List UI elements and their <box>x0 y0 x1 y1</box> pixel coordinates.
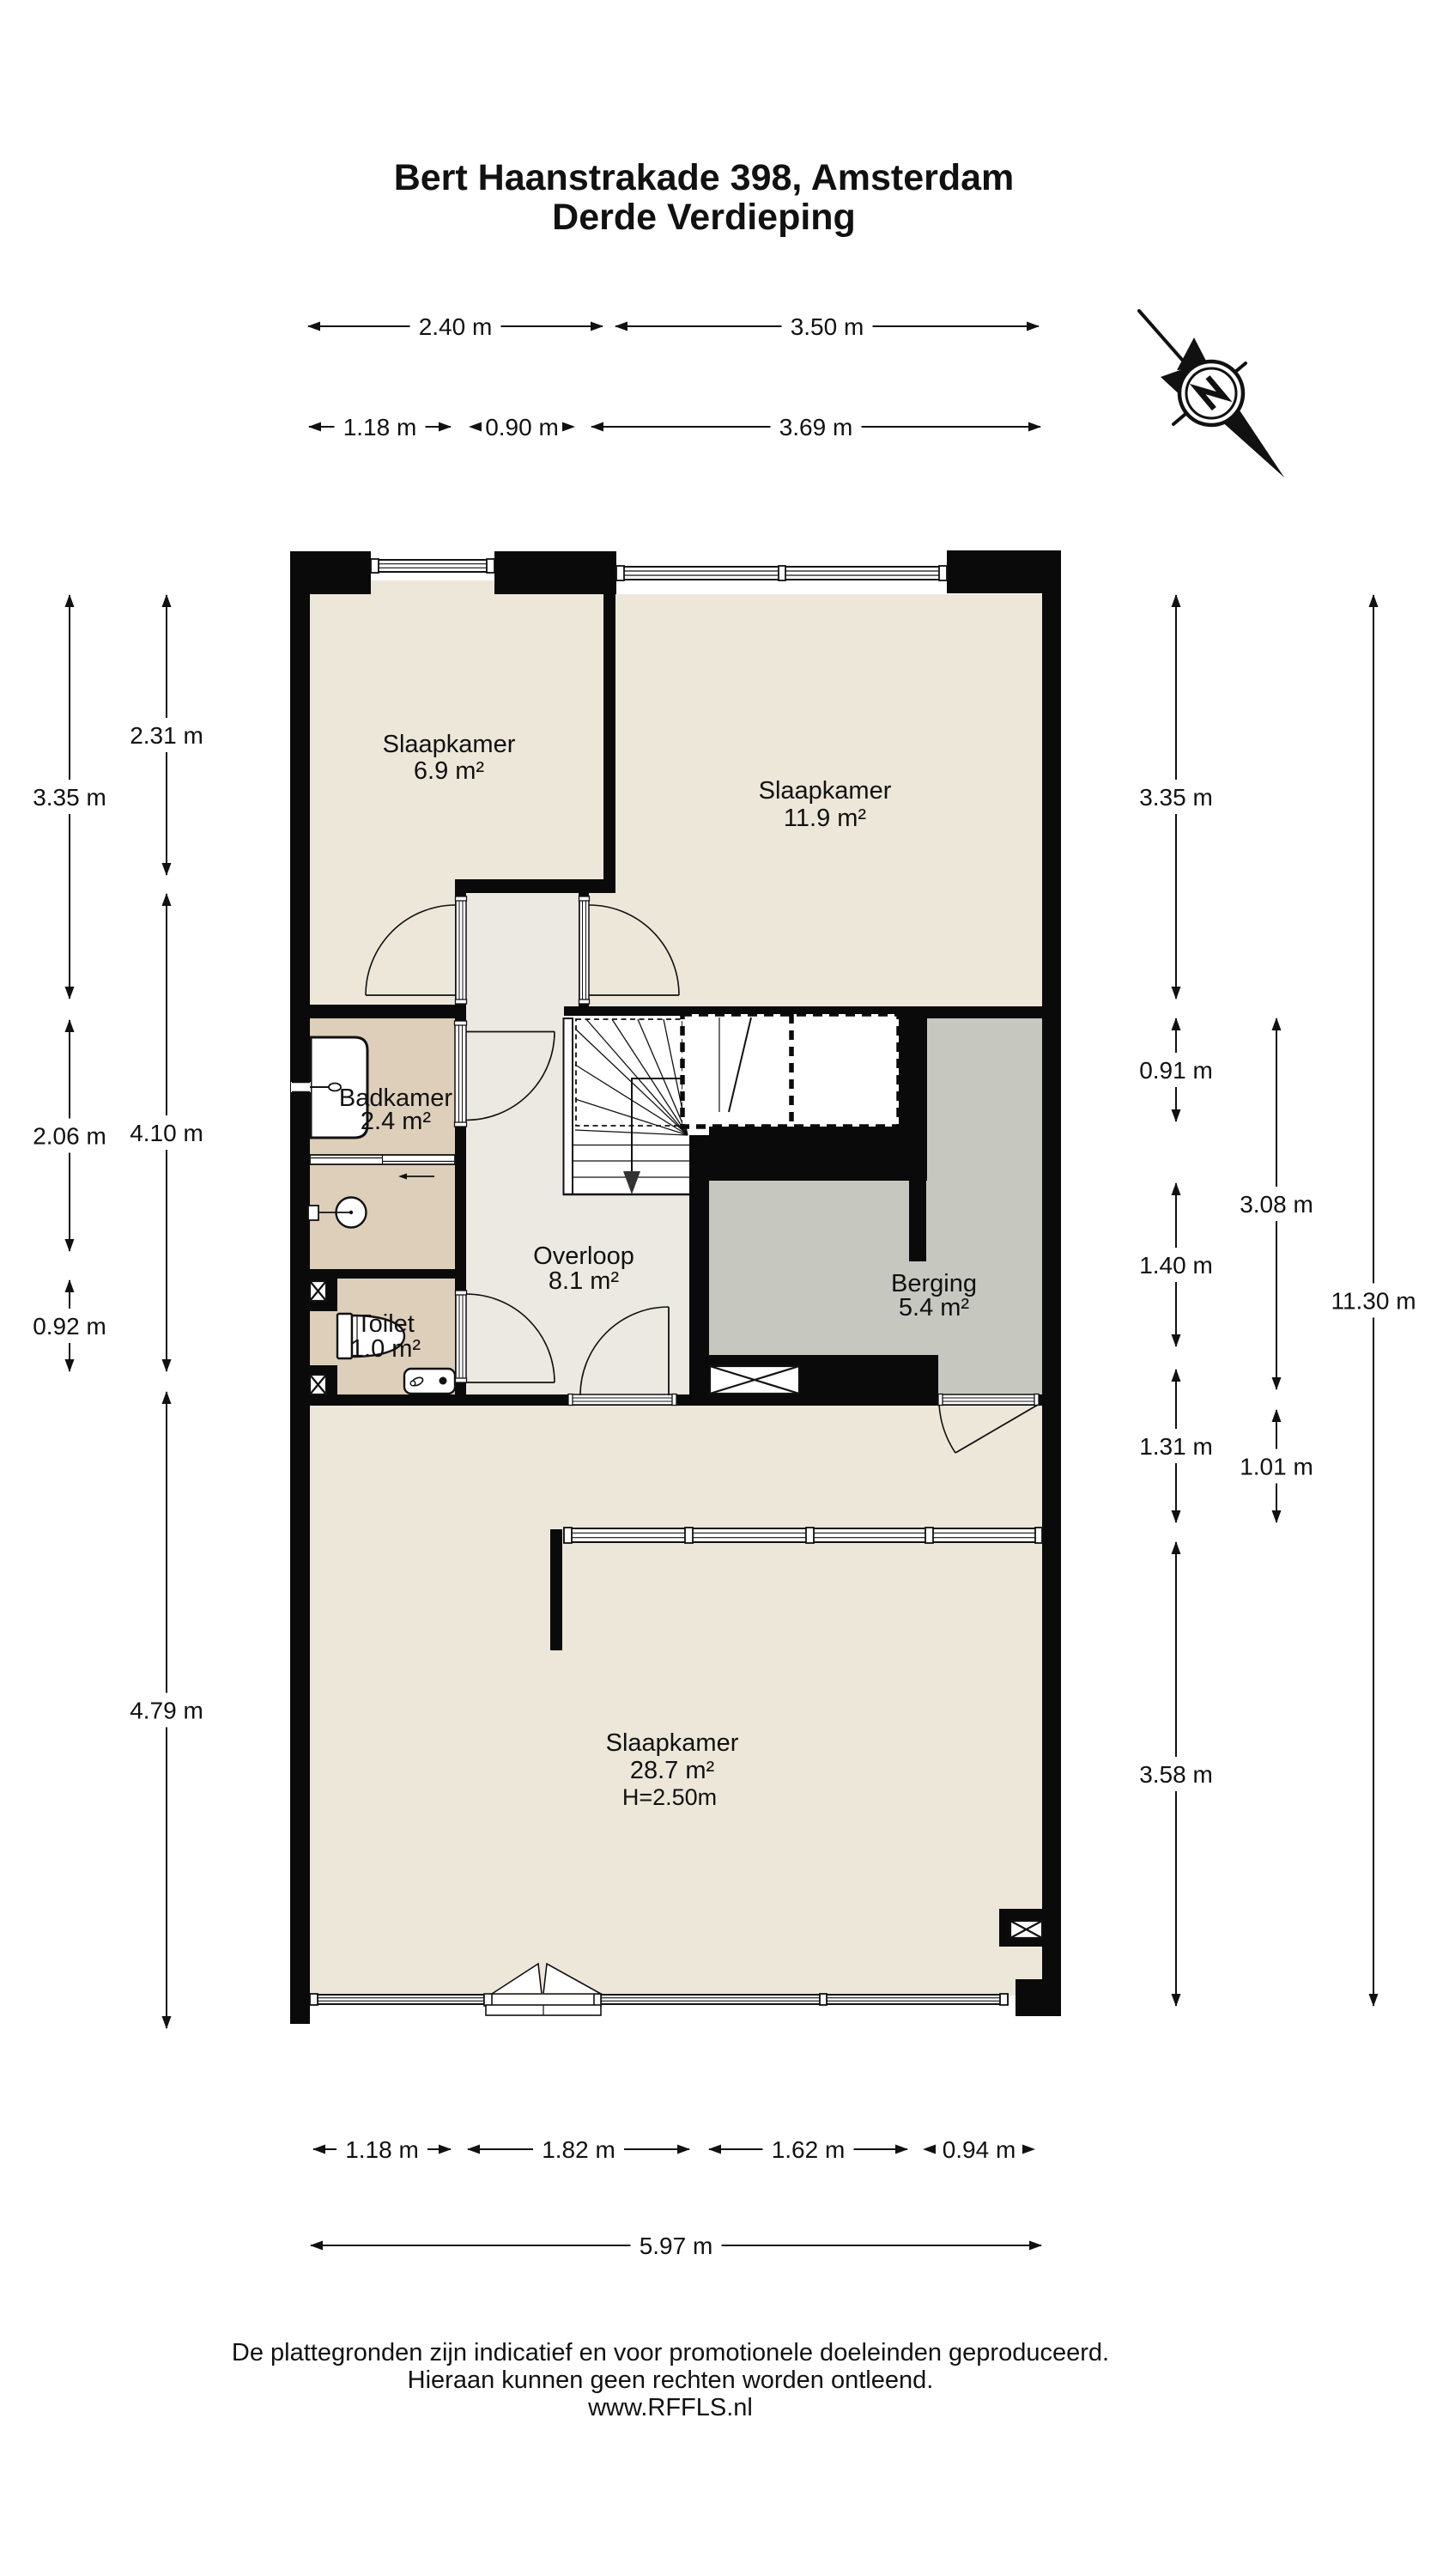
svg-text:Derde Verdieping: Derde Verdieping <box>552 197 856 238</box>
svg-text:4.10 m: 4.10 m <box>130 1120 203 1146</box>
svg-text:0.92 m: 0.92 m <box>33 1313 106 1340</box>
svg-text:6.9 m²: 6.9 m² <box>414 757 485 785</box>
svg-text:0.90 m: 0.90 m <box>485 414 559 440</box>
svg-text:Slaapkamer: Slaapkamer <box>383 731 516 758</box>
svg-text:0.94 m: 0.94 m <box>943 2136 1016 2163</box>
svg-text:11.30 m: 11.30 m <box>1331 1288 1416 1315</box>
svg-text:8.1 m²: 8.1 m² <box>549 1267 620 1295</box>
svg-text:3.08 m: 3.08 m <box>1240 1191 1313 1218</box>
svg-text:1.40 m: 1.40 m <box>1139 1252 1213 1279</box>
svg-text:0.91 m: 0.91 m <box>1139 1057 1213 1084</box>
svg-text:5.4 m²: 5.4 m² <box>899 1294 970 1321</box>
svg-text:3.58 m: 3.58 m <box>1139 1761 1213 1788</box>
svg-text:2.40 m: 2.40 m <box>419 313 493 340</box>
svg-text:3.35 m: 3.35 m <box>1139 784 1213 811</box>
svg-text:1.31 m: 1.31 m <box>1139 1433 1213 1460</box>
svg-text:3.69 m: 3.69 m <box>779 414 853 440</box>
svg-text:2.31 m: 2.31 m <box>130 722 203 749</box>
svg-text:Bert Haanstrakade 398, Amsterd: Bert Haanstrakade 398, Amsterdam <box>394 157 1015 198</box>
svg-text:1.18 m: 1.18 m <box>343 414 417 440</box>
svg-text:Hieraan kunnen geen rechten wo: Hieraan kunnen geen rechten worden ontle… <box>408 2366 934 2394</box>
svg-text:3.35 m: 3.35 m <box>33 784 106 811</box>
svg-text:1.0 m²: 1.0 m² <box>350 1335 421 1363</box>
svg-text:www.RFFLS.nl: www.RFFLS.nl <box>587 2394 753 2421</box>
svg-text:2.06 m: 2.06 m <box>33 1123 106 1150</box>
svg-text:1.18 m: 1.18 m <box>345 2136 419 2163</box>
svg-text:Overloop: Overloop <box>533 1242 634 1270</box>
svg-text:3.50 m: 3.50 m <box>791 313 864 340</box>
svg-text:28.7 m²: 28.7 m² <box>630 1757 715 1784</box>
svg-text:Slaapkamer: Slaapkamer <box>606 1729 739 1757</box>
svg-text:De plattegronden zijn indicati: De plattegronden zijn indicatief en voor… <box>232 2339 1109 2366</box>
svg-text:5.97 m: 5.97 m <box>640 2233 713 2259</box>
svg-text:H=2.50m: H=2.50m <box>622 1784 717 1810</box>
svg-text:Toilet: Toilet <box>356 1310 415 1338</box>
svg-text:1.82 m: 1.82 m <box>542 2136 615 2163</box>
svg-text:2.4 m²: 2.4 m² <box>361 1108 432 1135</box>
svg-text:11.9 m²: 11.9 m² <box>784 805 867 832</box>
svg-text:1.01 m: 1.01 m <box>1240 1454 1313 1480</box>
svg-text:1.62 m: 1.62 m <box>772 2136 846 2163</box>
svg-text:Slaapkamer: Slaapkamer <box>759 777 892 805</box>
svg-text:4.79 m: 4.79 m <box>130 1698 203 1724</box>
